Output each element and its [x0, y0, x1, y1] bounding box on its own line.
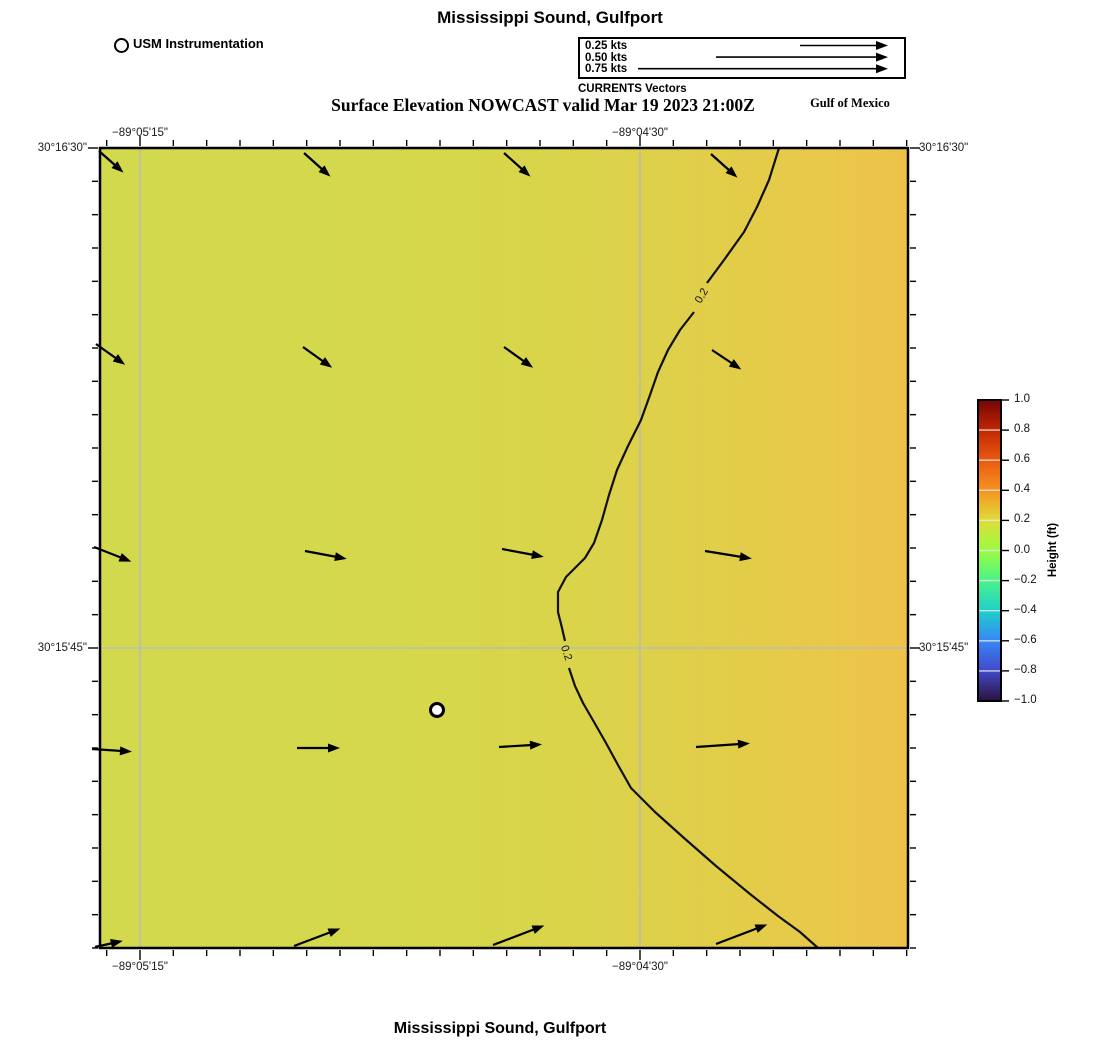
- bottom-caption: Mississippi Sound, Gulfport: [0, 1020, 1000, 1038]
- nowcast-figure: Mississippi Sound, Gulfport USM Instrume…: [0, 0, 1100, 1050]
- colorbar-tick-label: 0.0: [1014, 544, 1030, 556]
- colorbar-tick-label: −0.4: [1014, 604, 1037, 616]
- colorbar-tick-label: −0.8: [1014, 664, 1037, 676]
- colorbar-tick-label: −0.6: [1014, 634, 1037, 646]
- nowcast-plot: 0.20.2: [0, 0, 1100, 1050]
- station-marker: [431, 704, 444, 717]
- colorbar-tick-label: 0.2: [1014, 513, 1030, 525]
- colorbar-title: Height (ft): [1047, 500, 1061, 600]
- colorbar-tick-label: 0.6: [1014, 453, 1030, 465]
- colorbar-tick-label: 0.4: [1014, 483, 1030, 495]
- colorbar-tick-label: −0.2: [1014, 574, 1037, 586]
- colorbar-tick-label: −1.0: [1014, 694, 1037, 706]
- colorbar-tick-label: 1.0: [1014, 393, 1030, 405]
- colorbar-tick-label: 0.8: [1014, 423, 1030, 435]
- elevation-field: [100, 148, 908, 948]
